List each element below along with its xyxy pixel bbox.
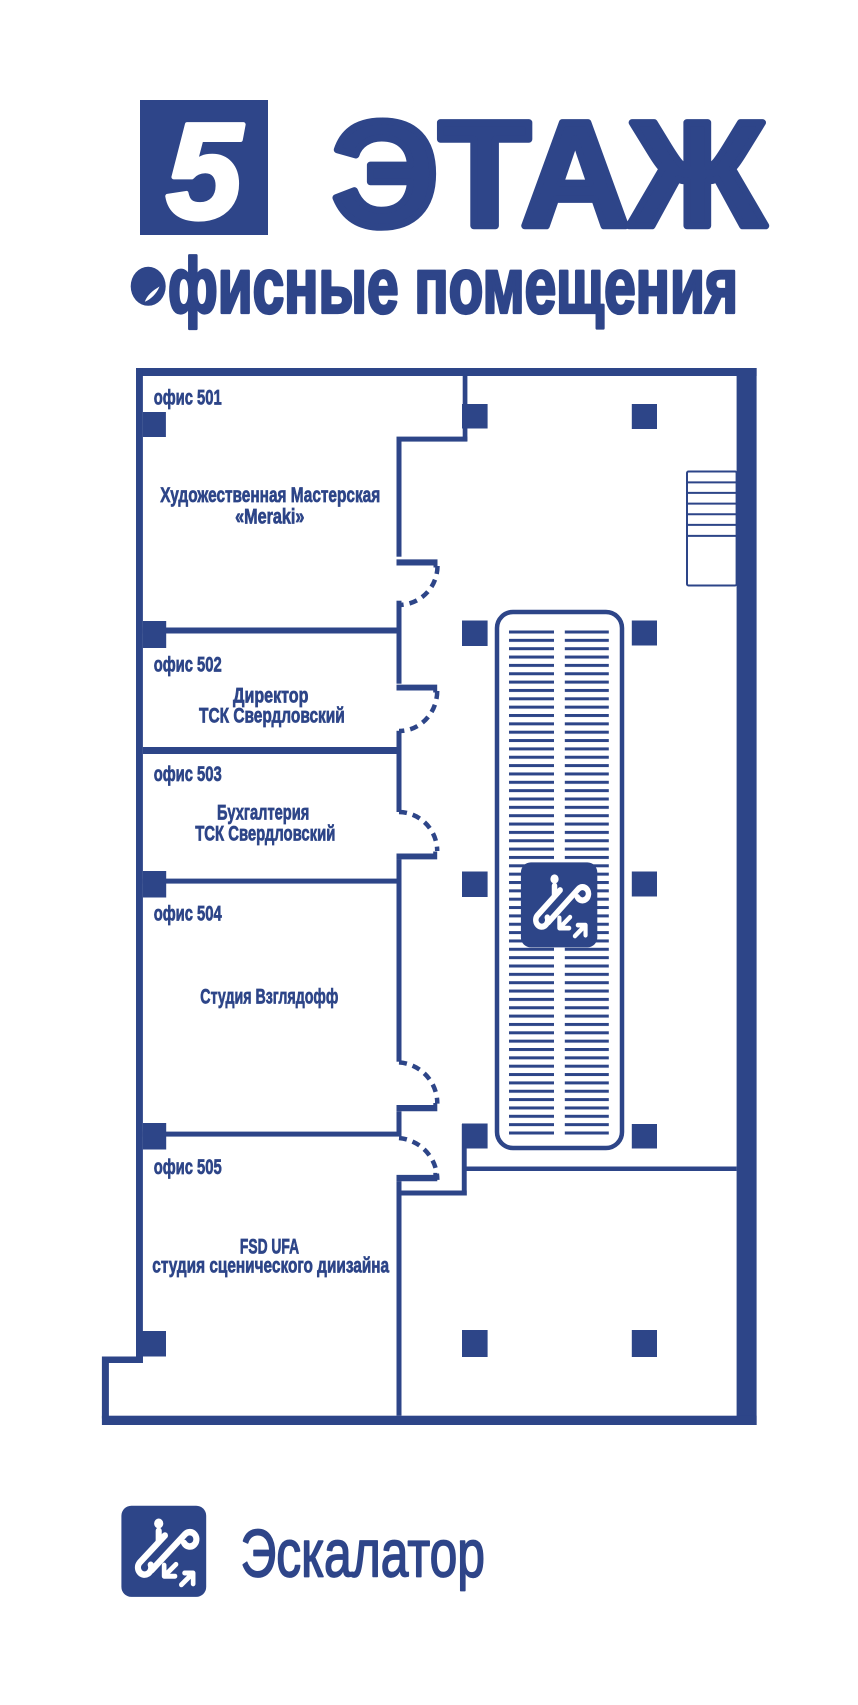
- svg-text:Эскалатор: Эскалатор: [241, 1517, 486, 1592]
- svg-text:ЭТАЖ: ЭТАЖ: [332, 90, 766, 258]
- svg-text:офис 502: офис 502: [154, 653, 222, 676]
- svg-text:Студия Взглядофф: Студия Взглядофф: [200, 986, 338, 1009]
- svg-text:«Meraki»: «Meraki»: [235, 506, 304, 529]
- svg-text:Бухгалтерия: Бухгалтерия: [217, 802, 309, 825]
- svg-text:ТСК Свердловский: ТСК Свердловский: [199, 704, 345, 727]
- svg-text:фисные помещения: фисные помещения: [168, 241, 738, 329]
- svg-text:ТСК Свердловский: ТСК Свердловский: [195, 823, 335, 846]
- svg-text:офис 505: офис 505: [154, 1156, 222, 1179]
- svg-text:студия сценического диизайна: студия сценического диизайна: [152, 1255, 389, 1278]
- svg-text:Художественная Мастерская: Художественная Мастерская: [160, 484, 380, 507]
- svg-text:офис 501: офис 501: [154, 387, 222, 410]
- svg-text:офис 503: офис 503: [154, 763, 222, 786]
- svg-text:офис 504: офис 504: [154, 903, 222, 926]
- svg-text:5: 5: [166, 95, 244, 247]
